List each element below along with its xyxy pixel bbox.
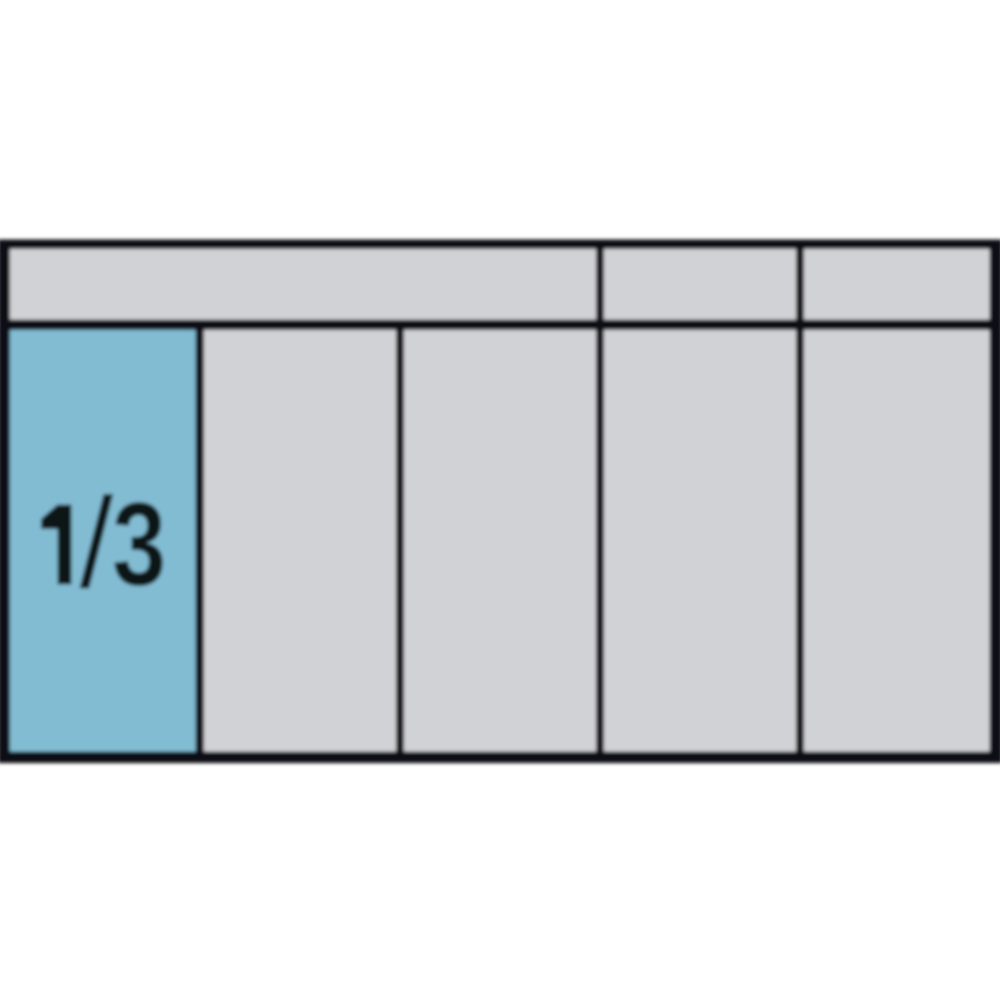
svg-text:3: 3: [112, 478, 166, 610]
